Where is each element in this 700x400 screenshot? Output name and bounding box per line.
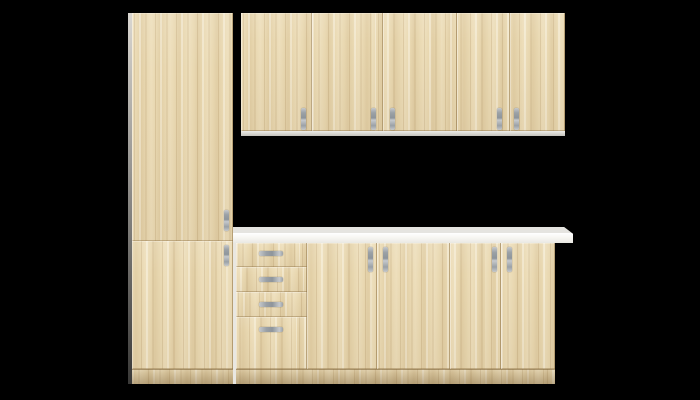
countertop <box>233 227 573 243</box>
base-door-1 <box>307 243 377 369</box>
wall-door-3-handle <box>390 108 395 130</box>
base-cabinet-run <box>233 243 571 384</box>
tall-cabinet-side-panel <box>233 13 241 229</box>
countertop-front <box>233 233 573 243</box>
wall-door-1-handle <box>301 108 306 130</box>
tall-cabinet-lower-door-handle <box>224 245 229 266</box>
drawer-unit <box>236 243 307 369</box>
tall-cabinet-plinth <box>132 369 233 384</box>
product-image <box>0 0 700 400</box>
tall-cabinet-lower-door <box>132 241 233 369</box>
drawer-1-handle <box>259 251 283 256</box>
wall-cabinet-side-panel <box>565 14 573 135</box>
drawer-3 <box>236 292 307 317</box>
drawer-2 <box>236 267 307 292</box>
drawer-4-handle <box>259 327 283 332</box>
base-plinth <box>236 369 555 384</box>
wall-door-5-handle <box>514 108 519 130</box>
wall-door-3 <box>383 13 457 131</box>
base-door-2 <box>377 243 450 369</box>
drawer-1 <box>236 243 307 267</box>
base-door-2-handle <box>383 247 388 272</box>
base-door-1-handle <box>368 247 373 272</box>
drawer-2-handle <box>259 277 283 282</box>
wall-door-2 <box>312 13 383 131</box>
wall-cabinet-bottom-edge <box>241 131 565 136</box>
drawer-3-handle <box>259 302 283 307</box>
wall-cabinet-run <box>241 13 573 136</box>
tall-cabinet-upper-door-handle <box>224 210 229 231</box>
wall-door-2-handle <box>371 108 376 130</box>
tall-cabinet-upper-door <box>132 13 233 241</box>
base-door-3 <box>450 243 501 369</box>
wall-door-4-handle <box>497 108 502 130</box>
tall-cabinet <box>128 13 241 384</box>
base-door-3-handle <box>492 247 497 272</box>
drawer-4 <box>236 317 307 369</box>
wall-door-1 <box>241 13 312 131</box>
wall-door-4 <box>457 13 510 131</box>
base-door-4-handle <box>507 247 512 272</box>
base-side-panel <box>555 243 571 382</box>
base-door-4 <box>501 243 555 369</box>
wall-door-5 <box>510 13 565 131</box>
